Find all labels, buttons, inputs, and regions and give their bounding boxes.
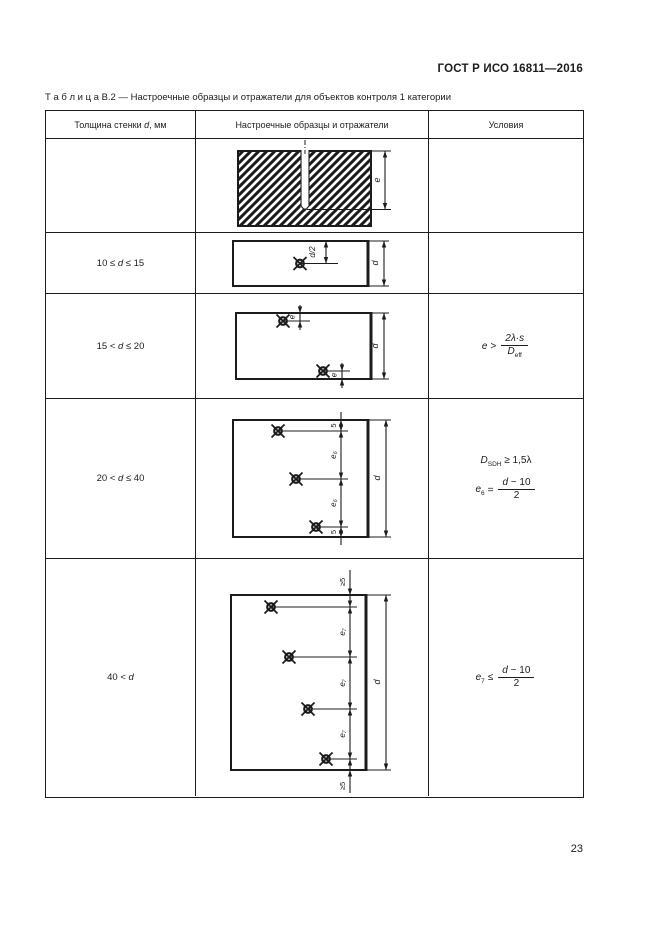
dim-label-thickness: d [370,260,380,266]
thickness-range-r4: 20 < d ≤ 40 [97,473,145,484]
formula-var: e [482,341,488,352]
diagram-cell-r3: e e d [196,294,429,399]
dim-label-thickness: d [372,474,382,480]
dim-label-half-depth: d/2 [308,246,317,258]
dim-label-edge-top: ≥5 [338,577,347,585]
thickness-range-r5: 40 < d [107,672,134,683]
thickness-cell-r2: 10 ≤ d ≤ 15 [46,233,196,294]
dim-label-offset-top: e [288,314,297,319]
formula-relation: > [490,341,496,352]
diagram-cell-r2: d/2 d [196,233,429,294]
diagram-sdh-three: 5 e₆ e₆ 5 d [198,400,426,558]
col-header-samples: Настроечные образцы и отражатели [196,111,429,139]
dim-label-spacing2: e₇ [338,678,347,686]
document-title: ГОСТ Р ИСО 16811—2016 [45,63,583,75]
col-header-thickness-text: Толщина стенки d, мм [74,120,166,130]
formula-fraction: d − 102 [498,665,534,690]
dim-label-notch-depth: e [372,177,382,182]
thickness-cell-r3: 15 < d ≤ 20 [46,294,196,399]
condition-cell-r4: DSDH ≥ 1,5λ e6=d − 102 [429,399,583,559]
condition-formula-r4-2: e6=d − 102 [475,477,536,502]
diagram-sdh-single: d/2 d [198,233,426,293]
table-b2: Толщина стенки d, мм Настроечные образцы… [45,110,584,798]
diagram-sdh-two: e e d [198,294,426,398]
dim-label-spacing2: e₆ [329,498,338,506]
condition-cell-r3: e>2λ·sDeff [429,294,583,399]
thickness-range-r3: 15 < d ≤ 20 [97,341,145,352]
notch-slot [301,148,310,208]
dim-label-spacing1: e₆ [329,450,338,458]
condition-cell-r2 [429,233,583,294]
col-header-thickness: Толщина стенки d, мм [46,111,196,139]
thickness-cell-r4: 20 < d ≤ 40 [46,399,196,559]
page-number: 23 [45,843,583,855]
dim-label-thickness: d [372,678,382,684]
condition-cell-r5: e7≤d − 102 [429,559,583,796]
condition-formulas-r4: DSDH ≥ 1,5λ e6=d − 102 [475,455,536,503]
diagram-cell-r4: 5 e₆ e₆ 5 d [196,399,429,559]
formula-fraction: d − 102 [498,477,534,502]
test-block-outline [236,313,371,379]
condition-formula-r5: e7≤d − 102 [476,665,537,690]
dim-label-spacing3: e₇ [338,729,347,737]
diagram-cell-r1: e [196,139,429,233]
diagram-cell-r5: ≥5 e₇ e₇ e₇ ≥5 d [196,559,429,796]
dim-label-spacing1: e₇ [338,627,347,635]
diagram-sdh-four: ≥5 e₇ e₇ e₇ ≥5 d [198,560,426,796]
formula-fraction: 2λ·sDeff [501,333,528,360]
condition-formula-r4-1: DSDH ≥ 1,5λ [481,455,532,469]
col-header-conditions: Условия [429,111,583,139]
condition-formula-r3: e>2λ·sDeff [482,333,530,360]
thickness-cell-r5: 40 < d [46,559,196,796]
thickness-range-r2: 10 ≤ d ≤ 15 [97,258,144,269]
thickness-cell-r1 [46,139,196,233]
condition-cell-r1 [429,139,583,233]
dim-label-offset-bottom: e [330,372,339,377]
dim-label-edge-bottom: 5 [329,529,338,533]
table-caption: Т а б л и ц а В.2 — Настроечные образцы … [45,92,583,103]
dim-label-edge-top: 5 [329,423,338,427]
dim-label-edge-bottom: ≥5 [338,781,347,789]
diagram-notched-block: e [198,140,426,232]
document-page: ГОСТ Р ИСО 16811—2016 Т а б л и ц а В.2 … [0,0,661,936]
